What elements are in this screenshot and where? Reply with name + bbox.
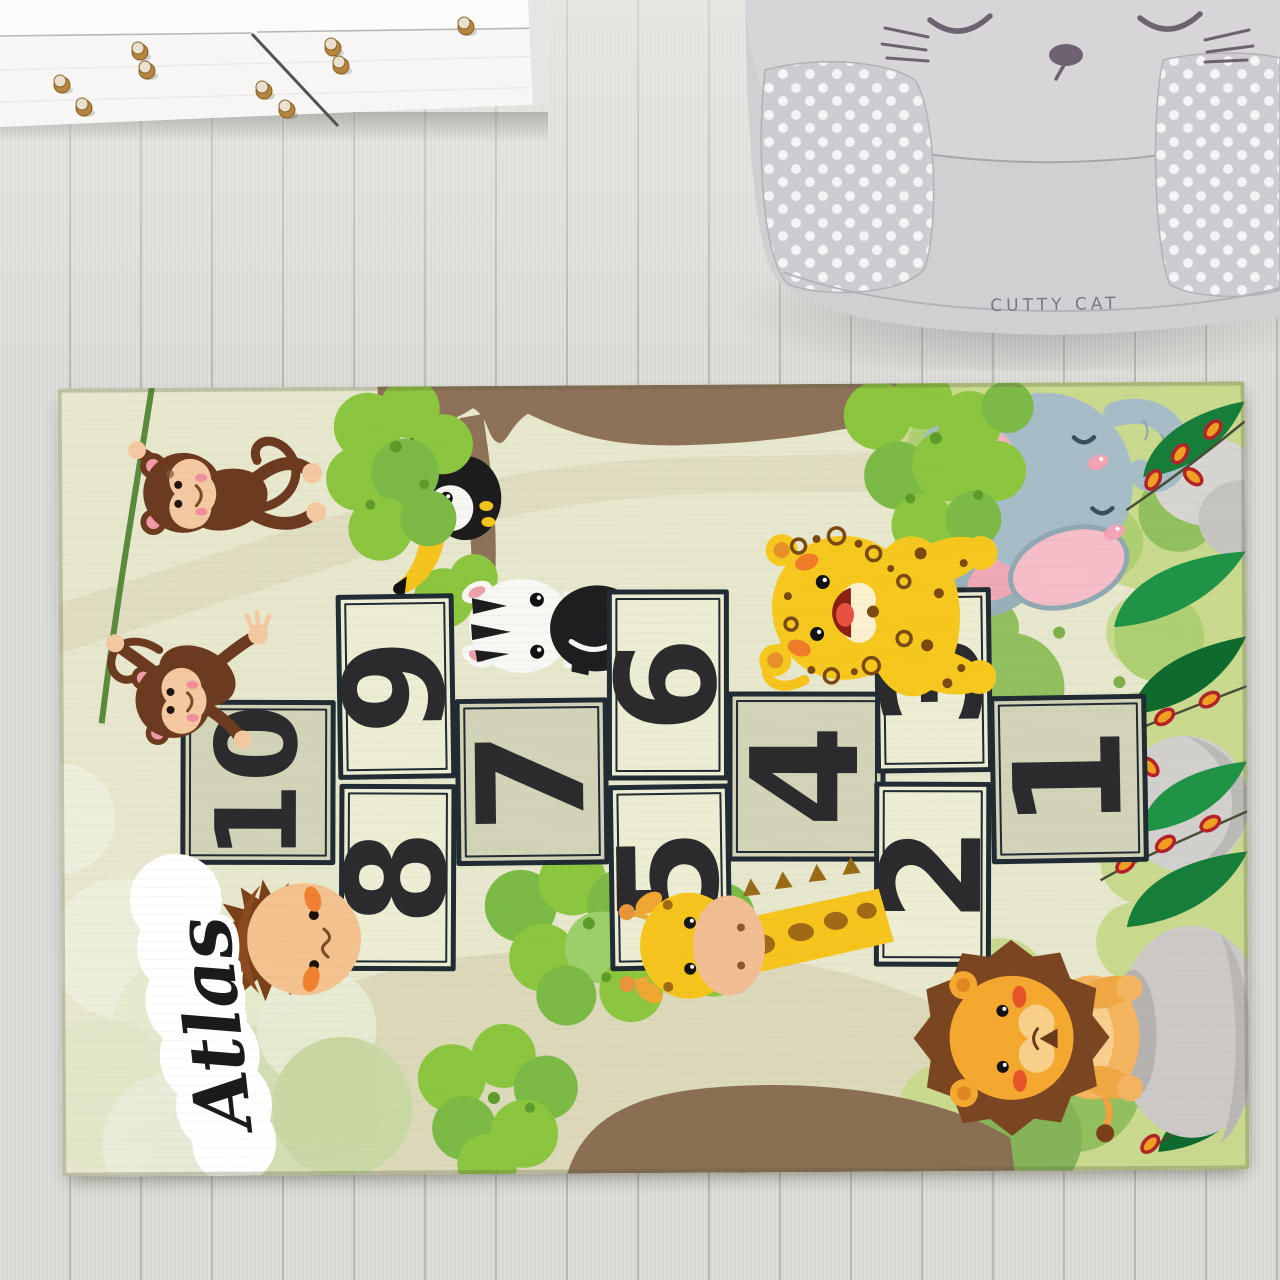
cat-pouf: CUTTY CAT xyxy=(735,0,1280,360)
dresser xyxy=(0,0,548,142)
pouf-left-armrest xyxy=(761,62,934,293)
cat-nose-icon xyxy=(1049,44,1083,66)
pouf-label: CUTTY CAT xyxy=(990,294,1119,316)
kids-room-photo: { "scene": { "type": "product photo", "s… xyxy=(0,0,1280,1280)
hopscotch-rug: 10 9 8 7 6 5 4 xyxy=(58,381,1250,1176)
pouf-right-armrest xyxy=(1156,53,1280,296)
